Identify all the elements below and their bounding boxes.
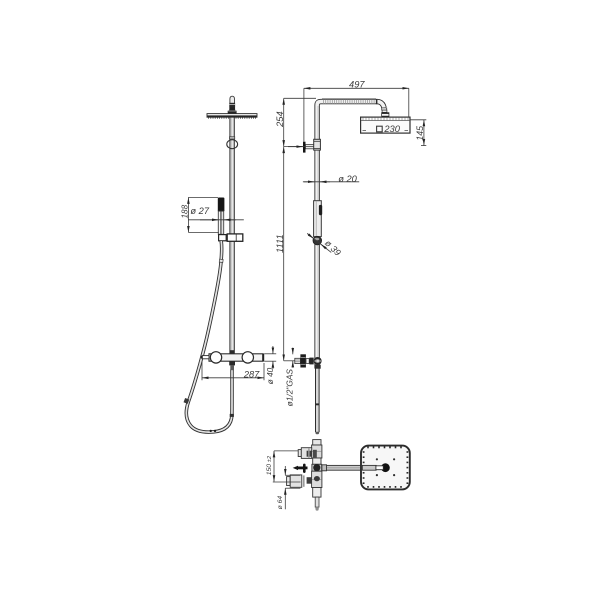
svg-text:ø 27: ø 27 — [190, 206, 209, 216]
svg-text:145: 145 — [415, 126, 425, 141]
svg-text:188: 188 — [180, 204, 189, 218]
svg-text:ø 64: ø 64 — [277, 496, 284, 510]
svg-text:254: 254 — [275, 111, 285, 128]
svg-text:ø1/2"GAS: ø1/2"GAS — [284, 369, 294, 407]
svg-text:230: 230 — [383, 124, 400, 134]
svg-text:497: 497 — [349, 80, 365, 90]
svg-text:287: 287 — [243, 369, 260, 379]
svg-text:1111: 1111 — [275, 234, 285, 253]
svg-text:ø 20: ø 20 — [338, 174, 357, 184]
svg-text:150 ±2: 150 ±2 — [266, 455, 273, 475]
svg-text:ø 40: ø 40 — [266, 367, 275, 384]
